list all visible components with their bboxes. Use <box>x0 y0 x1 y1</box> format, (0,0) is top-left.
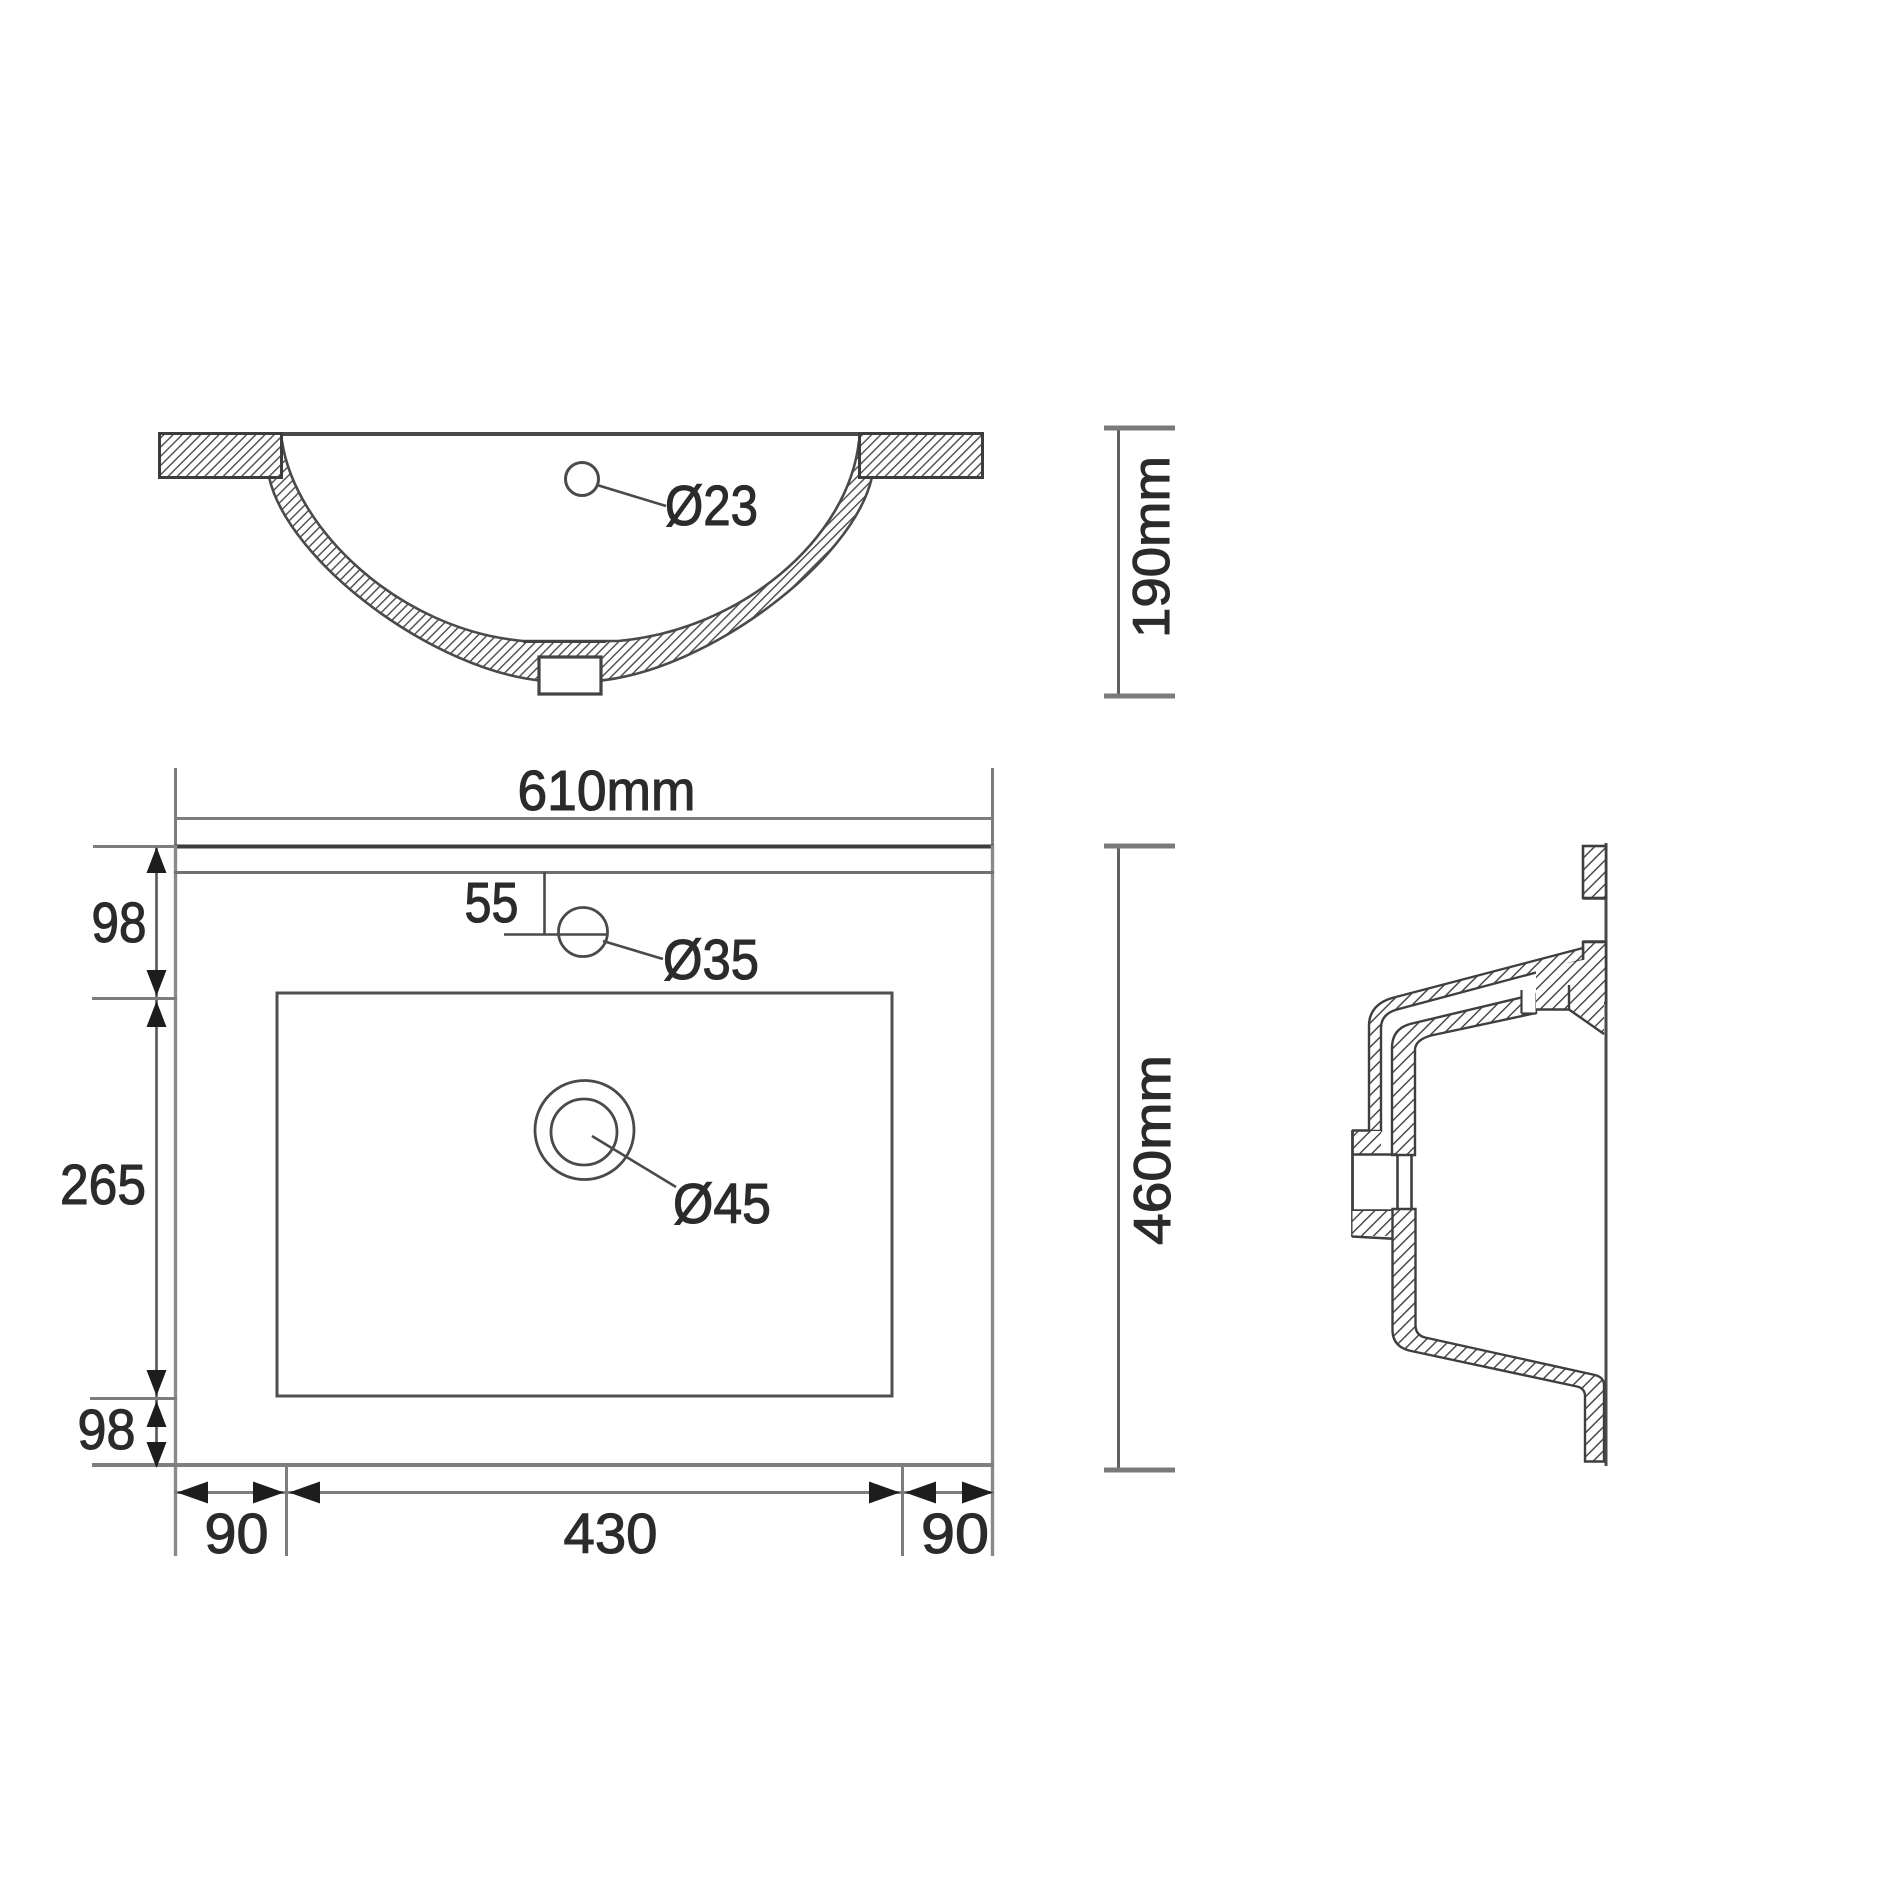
svg-text:190mm: 190mm <box>1123 456 1181 638</box>
svg-text:Ø23: Ø23 <box>665 474 758 538</box>
svg-text:610mm: 610mm <box>518 759 696 823</box>
svg-text:Ø35: Ø35 <box>663 928 759 992</box>
svg-text:460mm: 460mm <box>1124 1055 1182 1245</box>
svg-text:Ø45: Ø45 <box>673 1172 771 1236</box>
svg-text:98: 98 <box>92 891 147 955</box>
svg-text:90: 90 <box>921 1502 989 1566</box>
svg-text:55: 55 <box>465 871 519 935</box>
svg-text:98: 98 <box>78 1398 136 1462</box>
svg-text:265: 265 <box>60 1153 146 1217</box>
svg-text:430: 430 <box>564 1502 658 1566</box>
svg-text:90: 90 <box>205 1502 269 1566</box>
